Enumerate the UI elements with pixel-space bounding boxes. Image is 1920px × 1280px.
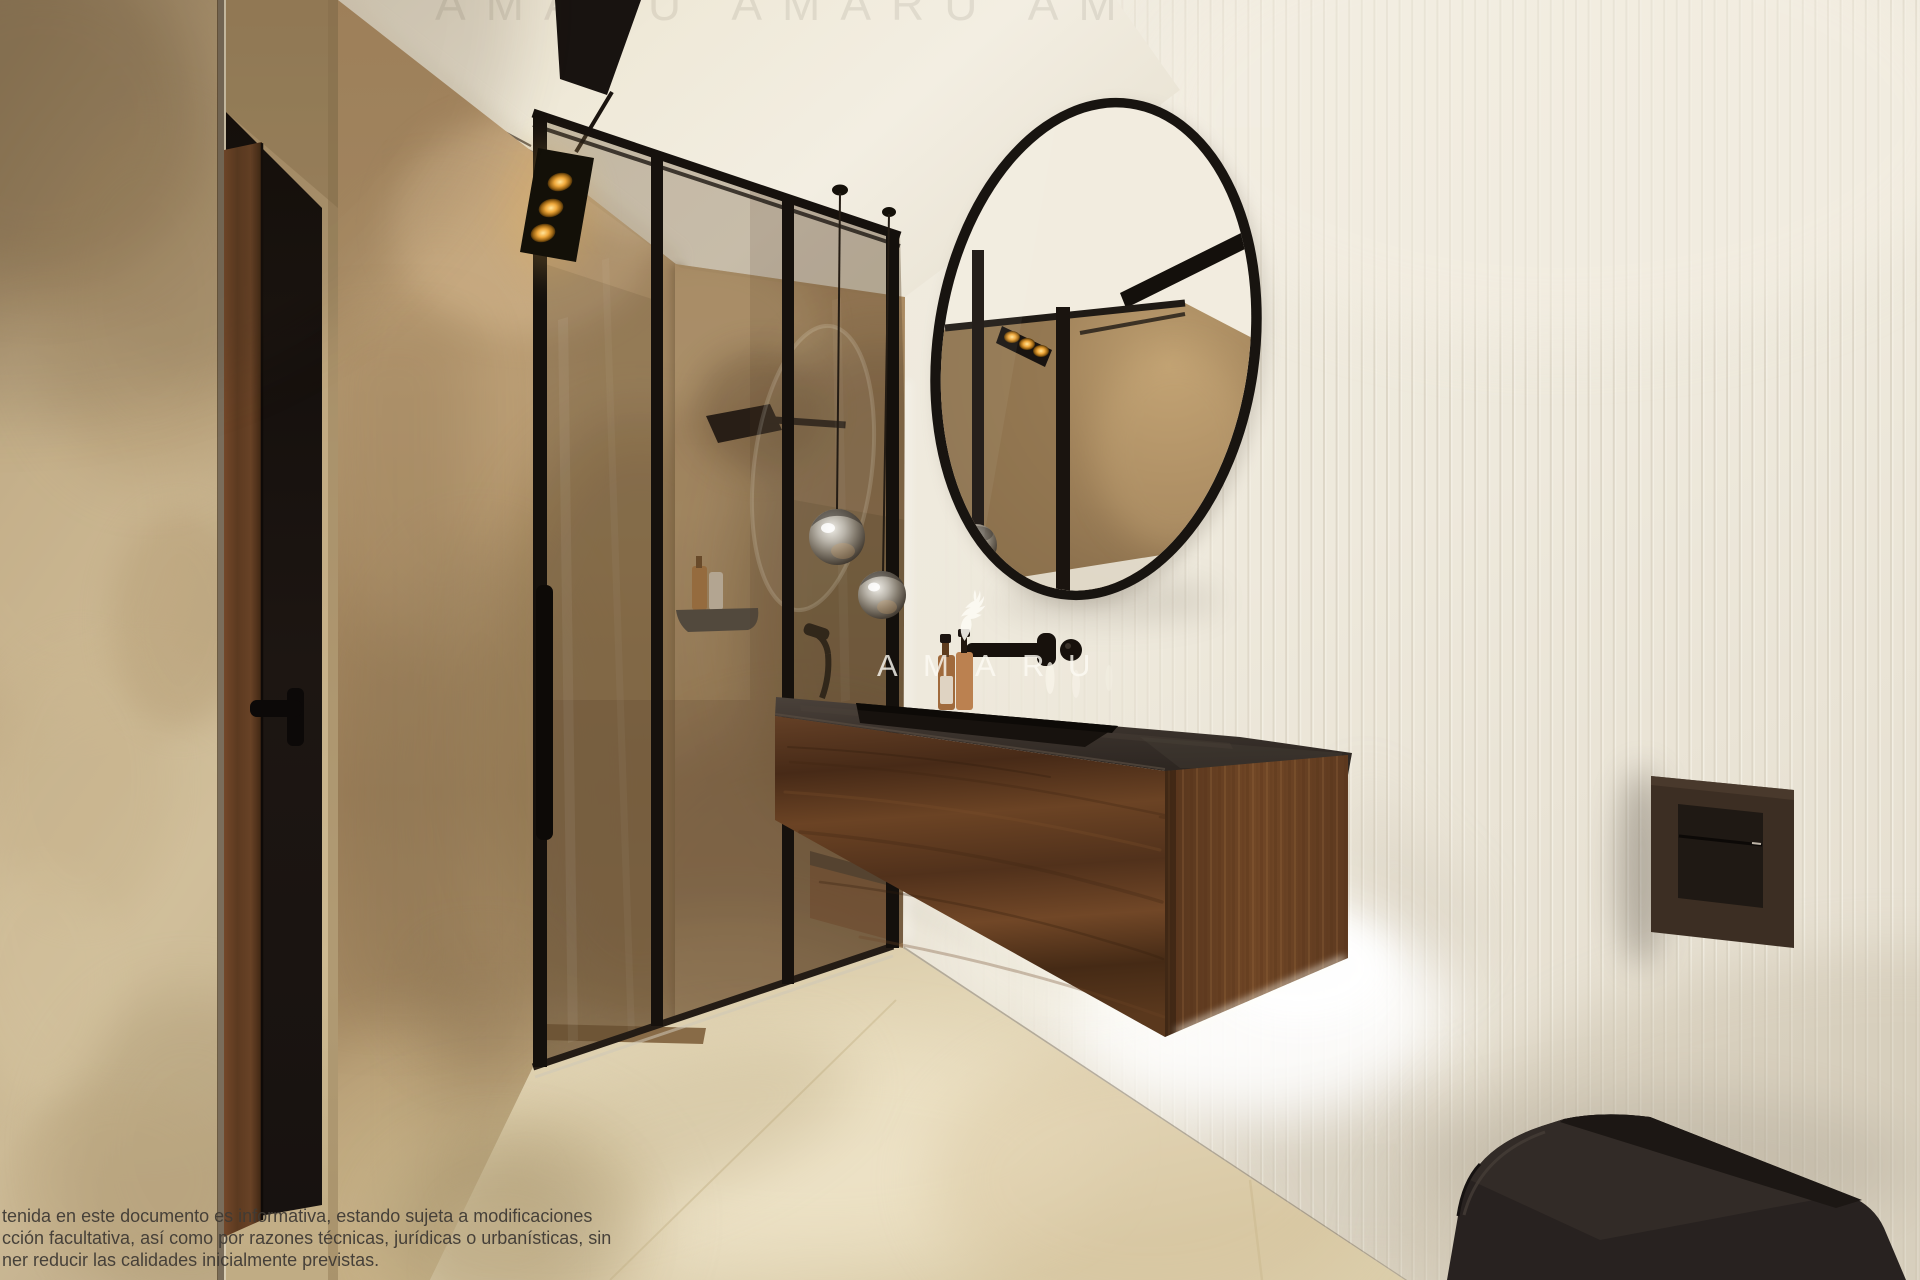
- svg-text:cción facultativa, así como po: cción facultativa, así como por razones …: [2, 1228, 611, 1248]
- svg-text:R: R: [1022, 648, 1044, 683]
- svg-text:tenida en este documento es in: tenida en este documento es informativa,…: [2, 1206, 592, 1226]
- svg-text:U: U: [1068, 648, 1090, 683]
- svg-text:M: M: [923, 648, 949, 683]
- svg-text:A: A: [877, 648, 898, 683]
- svg-text:A: A: [975, 648, 996, 683]
- svg-text:ner reducir las calidades inic: ner reducir las calidades inicialmente p…: [2, 1250, 379, 1270]
